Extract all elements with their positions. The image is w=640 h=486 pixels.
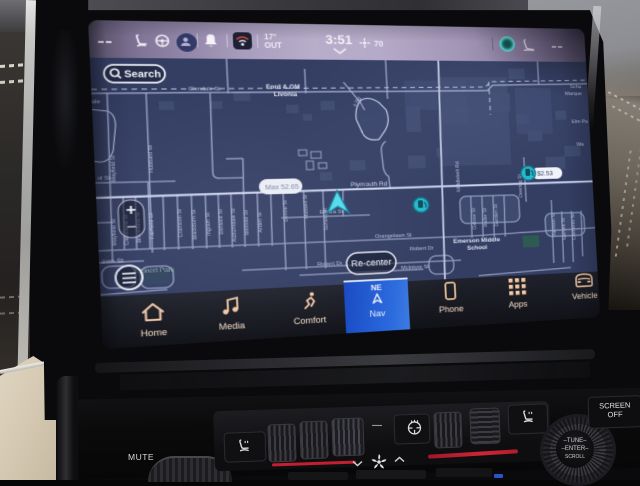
svg-text:ol St: ol St bbox=[97, 175, 110, 182]
svg-text:Cranston St: Cranston St bbox=[177, 209, 184, 238]
svg-text:ale: ale bbox=[92, 99, 101, 105]
svg-text:Glendale St: Glendale St bbox=[188, 86, 220, 92]
svg-text:Livonia: Livonia bbox=[274, 92, 298, 98]
svg-text:Robert Dr: Robert Dr bbox=[410, 245, 434, 252]
svg-text:$2.53: $2.53 bbox=[537, 170, 553, 178]
svg-text:Arden St: Arden St bbox=[257, 212, 264, 233]
svg-text:Fairfield St: Fairfield St bbox=[149, 213, 156, 239]
svg-text:Hubbell St: Hubbell St bbox=[303, 194, 310, 218]
svg-text:awn St: awn St bbox=[101, 258, 124, 265]
svg-text:Robert Dr: Robert Dr bbox=[317, 260, 342, 267]
svg-text:Marque: Marque bbox=[565, 91, 583, 97]
svg-text:Ford & GM: Ford & GM bbox=[266, 84, 301, 90]
svg-text:Mayfield St: Mayfield St bbox=[111, 218, 119, 246]
svg-text:School: School bbox=[467, 245, 488, 252]
svg-text:Wa: Wa bbox=[576, 142, 584, 148]
svg-text:Max 52.65: Max 52.65 bbox=[265, 183, 299, 192]
svg-text:Re-center: Re-center bbox=[351, 258, 392, 269]
svg-text:Berwick St: Berwick St bbox=[218, 209, 225, 235]
svg-text:Scha: Scha bbox=[570, 84, 582, 90]
svg-text:Haller St: Haller St bbox=[483, 208, 489, 227]
svg-text:Mayfield St: Mayfield St bbox=[110, 155, 118, 182]
svg-text:Plymouth Rd: Plymouth Rd bbox=[351, 181, 388, 188]
svg-text:Hubbard St: Hubbard St bbox=[148, 145, 155, 173]
svg-text:Search: Search bbox=[124, 69, 161, 80]
svg-text:Denne St: Denne St bbox=[283, 200, 290, 222]
svg-text:Ingram St: Ingram St bbox=[205, 212, 212, 236]
svg-text:Melrose St: Melrose St bbox=[244, 210, 251, 236]
svg-text:Elm Pa: Elm Pa bbox=[572, 119, 589, 125]
